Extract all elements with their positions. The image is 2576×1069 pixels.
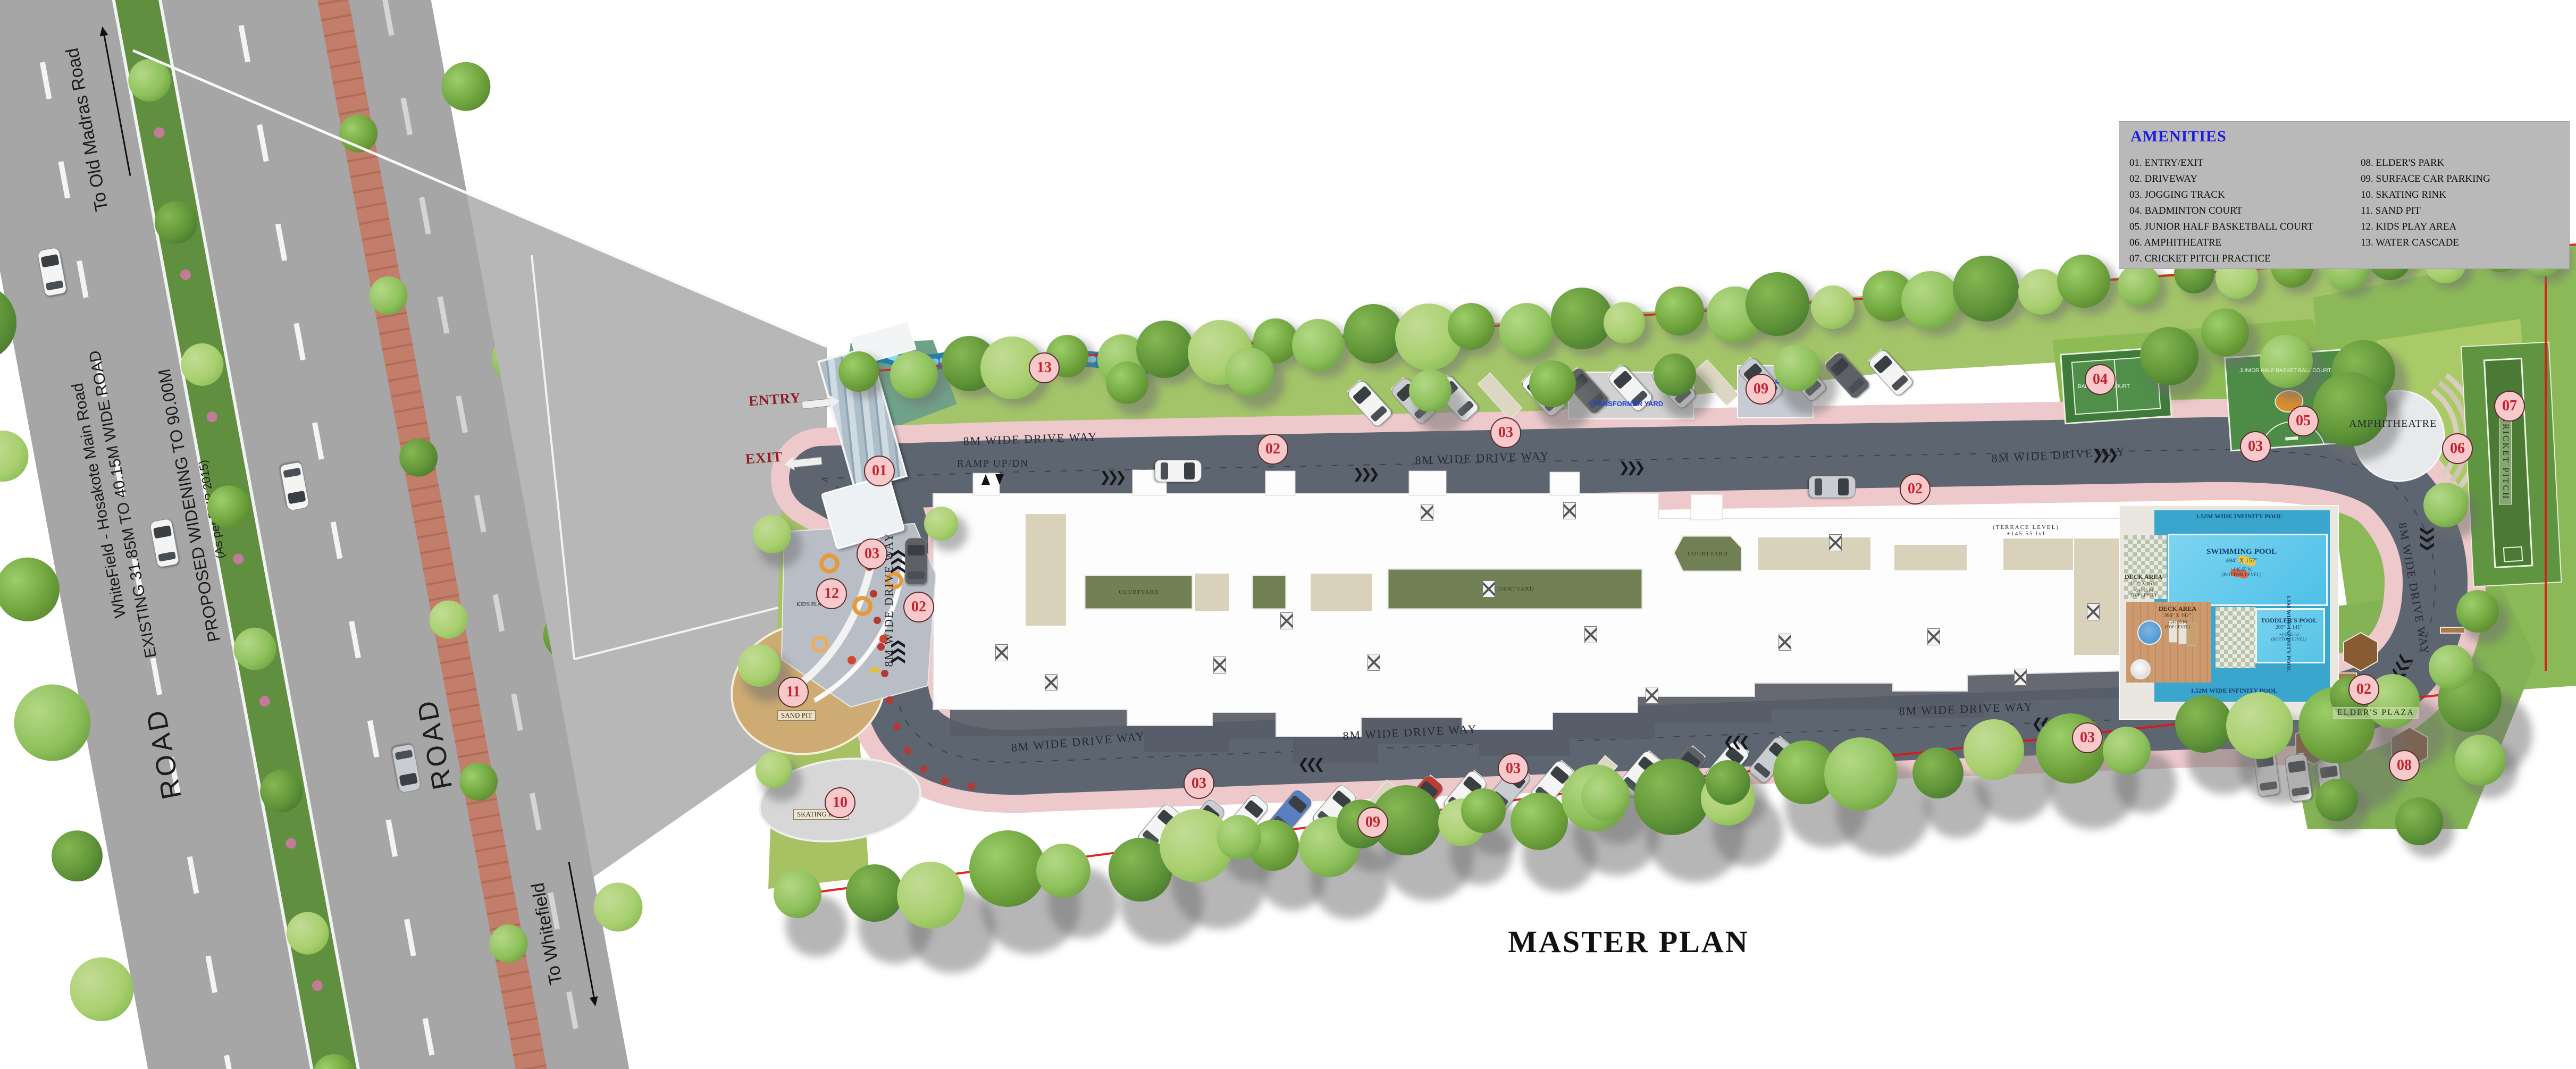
- legend-item: 13. WATER CASCADE: [2361, 235, 2490, 251]
- track-shrub: [877, 643, 885, 651]
- tree: [1136, 321, 1194, 378]
- ramp-label: RAMP UP/DN: [957, 458, 1029, 470]
- legend-item: 09. SURFACE CAR PARKING: [2361, 171, 2490, 187]
- tree: [890, 351, 938, 399]
- tree: [1499, 303, 1554, 357]
- exit-label: EXIT: [745, 449, 783, 468]
- legend-item: 10. SKATING RINK: [2361, 187, 2490, 203]
- tree: [2313, 372, 2387, 447]
- driveway-direction-chevrons: ❯❯❯: [2420, 525, 2436, 549]
- basketball-court-label: JUNIOR HALF BASKET BALL COURT: [2239, 368, 2331, 374]
- tree: [1811, 285, 1855, 329]
- track-shrub: [904, 747, 911, 754]
- amenity-marker-13: 13: [1029, 352, 1060, 383]
- amenity-marker-02: 02: [1257, 434, 1288, 465]
- stair-core: [1280, 612, 1293, 629]
- deck-area-2-label: DECK AREA 396" X 192" +147.95 lvl (TOP L…: [2159, 605, 2196, 629]
- tree: [1604, 302, 1645, 343]
- legend-column-2: 08. ELDER'S PARK09. SURFACE CAR PARKING1…: [2361, 155, 2490, 251]
- car: [1155, 460, 1202, 482]
- legend-item: 12. KIDS PLAY AREA: [2361, 219, 2490, 235]
- amenity-marker-09: 09: [1357, 807, 1388, 838]
- amenity-marker-03: 03: [857, 538, 887, 569]
- courtyard-label: COURTYARD: [1688, 551, 1728, 557]
- legend-item: 03. JOGGING TRACK: [2129, 187, 2313, 203]
- amenities-legend: AMENITIES 01. ENTRY/EXIT02. DRIVEWAY03. …: [2119, 121, 2570, 269]
- tree: [1824, 737, 1898, 811]
- ramp-arrow-up: [981, 474, 990, 485]
- cricket-pitch-label: CRICKET PITCH: [2499, 411, 2512, 504]
- amenity-marker-11: 11: [778, 677, 809, 708]
- master-plan-canvas: ROAD ROAD To Old Madras Road To Whitefie…: [0, 0, 2576, 1069]
- tree: [774, 870, 821, 918]
- stair-core: [1563, 502, 1576, 519]
- amenity-marker-09: 09: [1746, 374, 1776, 405]
- tree: [1344, 304, 1403, 364]
- amenity-marker-01: 01: [864, 456, 895, 486]
- tree: [2315, 779, 2358, 821]
- tree: [2395, 797, 2443, 845]
- tree: [2057, 255, 2110, 308]
- deck-area-1-label: DECK AREA 112" X 161" +147.95 lvl (TOP L…: [2125, 573, 2162, 597]
- stair-core: [995, 644, 1008, 661]
- legend-item: 02. DRIVEWAY: [2129, 171, 2313, 187]
- tree: [1634, 759, 1710, 835]
- tree: [2103, 727, 2151, 775]
- umbrella-white: [2130, 659, 2151, 679]
- tree: [1216, 815, 1261, 860]
- tree: [1901, 271, 1960, 330]
- deck-checker-2: [2216, 607, 2255, 668]
- stair-core: [1213, 656, 1226, 674]
- tree: [1511, 793, 1568, 850]
- tree: [2423, 483, 2468, 527]
- tree: [1655, 287, 1704, 335]
- legend-item: 05. JUNIOR HALF BASKETBALL COURT: [2129, 219, 2313, 235]
- tree: [738, 644, 781, 687]
- stair-core: [2087, 603, 2100, 620]
- tree: [846, 864, 903, 922]
- sand-pit-label: SAND PIT: [777, 710, 816, 721]
- tree: [2226, 692, 2293, 759]
- car: [1809, 476, 1856, 498]
- stair-core: [1421, 504, 1433, 521]
- tree: [2175, 695, 2233, 753]
- tree: [1292, 319, 1344, 371]
- tree: [1409, 369, 1451, 412]
- elders-plaza-label: ELDER'S PLAZA: [2333, 707, 2419, 719]
- driveway-direction-chevrons: ❯❯❯: [2092, 447, 2115, 463]
- swimming-pool-label: SWIMMING POOL 494" X 157" +146.65 lvl (B…: [2206, 548, 2277, 577]
- amenity-marker-02: 02: [2348, 674, 2379, 705]
- amenity-marker-03: 03: [1184, 768, 1214, 799]
- tree: [1964, 719, 2024, 780]
- driveway-direction-chevrons: ❯❯❯: [1100, 469, 1123, 485]
- tree: [924, 507, 958, 541]
- tree: [969, 830, 1046, 907]
- stair-core: [1584, 626, 1597, 643]
- courtyard-label: COURTYARD: [1119, 589, 1159, 595]
- track-shrub: [893, 723, 901, 730]
- tower-stub: [1265, 471, 1295, 495]
- track-shrub: [920, 765, 927, 773]
- tree: [1912, 747, 1964, 798]
- tree: [1448, 303, 1495, 350]
- page-title: MASTER PLAN: [1469, 924, 1788, 959]
- infinity-pool-right-label: 1.5M WIDE INFINITY POOL: [2285, 595, 2292, 672]
- amenity-marker-10: 10: [825, 787, 855, 818]
- amenity-marker-07: 07: [2494, 391, 2525, 422]
- legend-item: 11. SAND PIT: [2361, 203, 2490, 219]
- tree: [1529, 360, 1576, 407]
- tree: [1551, 288, 1613, 349]
- driveway-direction-chevrons: ❯❯❯: [890, 552, 905, 575]
- legend-item: 06. AMPHITHEATRE: [2129, 235, 2313, 251]
- legend-title: AMENITIES: [2130, 128, 2227, 146]
- legend-item: 04. BADMINTON COURT: [2129, 203, 2313, 219]
- amenity-marker-04: 04: [2085, 364, 2116, 395]
- tree: [1225, 348, 1274, 397]
- track-shrub: [881, 670, 888, 677]
- amenity-marker-08: 08: [2389, 750, 2420, 781]
- stair-core: [2014, 669, 2027, 686]
- driveway-direction-chevrons: ❯❯❯: [1353, 466, 1376, 482]
- tower-stub: [1550, 472, 1580, 495]
- tower-stub: [1409, 471, 1446, 495]
- legend-item: 08. ELDER'S PARK: [2361, 155, 2490, 171]
- infinity-pool-top-label: 1.52M WIDE INFINITY POOL: [2196, 512, 2283, 520]
- ramp-arrow-down: [995, 474, 1004, 485]
- transformer-yard-label: TRANSFORMER YARD: [1589, 400, 1663, 408]
- amenity-marker-05: 05: [2288, 406, 2319, 436]
- tree: [1774, 344, 1820, 391]
- amphitheatre-label: AMPHITHEATRE: [2349, 418, 2437, 430]
- tower-stub: [1691, 494, 1723, 520]
- tree: [1581, 772, 1630, 821]
- driveway-direction-chevrons: ❯❯❯: [1302, 757, 1325, 773]
- courtyard-label: COURTYARD: [1494, 586, 1534, 592]
- stair-core: [1829, 534, 1842, 551]
- tree: [2429, 645, 2473, 689]
- stair-core: [1482, 580, 1495, 597]
- tree: [1953, 256, 2019, 322]
- legend-item: 07. CRICKET PITCH PRACTICE: [2129, 251, 2313, 267]
- tree: [897, 862, 964, 929]
- stair-core: [1646, 687, 1658, 704]
- tree: [1106, 361, 1148, 404]
- driveway-direction-chevrons: ❯❯❯: [1618, 460, 1642, 476]
- amenity-marker-03: 03: [2072, 722, 2103, 753]
- amenity-marker-06: 06: [2442, 433, 2473, 464]
- track-shrub: [886, 696, 893, 704]
- amenity-marker-12: 12: [816, 578, 847, 609]
- track-shrub: [941, 777, 949, 785]
- driveway-direction-chevrons: ❯❯❯: [890, 642, 905, 666]
- tree: [1706, 760, 1750, 805]
- stair-core: [1045, 674, 1058, 691]
- tree: [1461, 788, 1506, 833]
- legend-column-1: 01. ENTRY/EXIT02. DRIVEWAY03. JOGGING TR…: [2129, 155, 2313, 267]
- track-shrub: [968, 782, 975, 790]
- stair-core: [1778, 634, 1791, 651]
- terrace-level-label: (TERRACE LEVEL)+145.55 lvl: [1993, 524, 2059, 537]
- tree: [753, 515, 791, 553]
- tree: [2201, 308, 2249, 356]
- tree: [1036, 844, 1090, 898]
- tree: [756, 752, 792, 788]
- amenity-marker-03: 03: [1490, 417, 1521, 448]
- car: [905, 538, 927, 585]
- tree: [2455, 735, 2506, 786]
- tree: [2456, 590, 2499, 633]
- tree: [1654, 353, 1696, 396]
- track-shrub: [874, 617, 881, 624]
- amenity-marker-03: 03: [2240, 431, 2271, 462]
- parcel-boundary-line: [133, 50, 827, 347]
- tree: [2260, 335, 2313, 388]
- amenity-marker-02: 02: [903, 592, 934, 622]
- tree: [2118, 264, 2160, 306]
- amenity-marker-02: 02: [1900, 474, 1931, 504]
- tree: [1746, 272, 1809, 336]
- driveway-direction-chevrons: ❯❯❯: [1727, 735, 1750, 751]
- track-shrub: [870, 590, 877, 597]
- stair-core: [1367, 654, 1380, 671]
- tree: [838, 351, 879, 392]
- tree: [2140, 327, 2199, 385]
- stair-core: [1927, 628, 1940, 645]
- legend-item: 01. ENTRY/EXIT: [2129, 155, 2313, 171]
- amenity-marker-03: 03: [1498, 753, 1529, 784]
